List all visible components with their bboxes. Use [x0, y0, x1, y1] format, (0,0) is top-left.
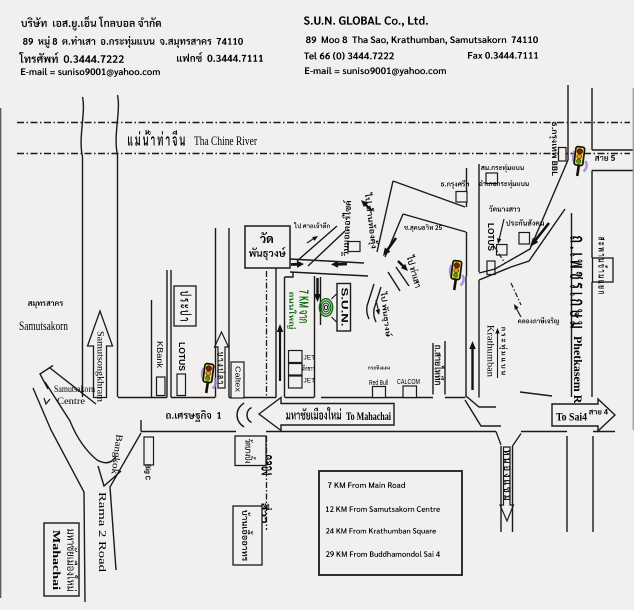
svg-text:To Mahachai: To Mahachai	[346, 409, 391, 423]
svg-text:Red Bull: Red Bull	[369, 378, 388, 387]
svg-text:To Sai4: To Sai4	[556, 410, 587, 424]
svg-text:Mahachai: Mahachai	[50, 530, 62, 590]
svg-text:Tha Chine River: Tha Chine River	[194, 133, 257, 148]
svg-text:LOTUS: LOTUS	[177, 342, 187, 371]
svg-text:CALCOM: CALCOM	[397, 377, 420, 386]
svg-text:S.U.N.: S.U.N.	[340, 288, 350, 327]
svg-text:JET: JET	[304, 378, 316, 385]
svg-text:Samutsongkhram: Samutsongkhram	[95, 331, 105, 403]
svg-text:Krathumban: Krathumban	[485, 325, 495, 377]
svg-text:Caltex: Caltex	[234, 366, 243, 392]
svg-text:Rama 2 Road: Rama 2 Road	[96, 492, 108, 573]
svg-text:Big C: Big C	[144, 464, 151, 480]
svg-text:Centre: Centre	[57, 397, 85, 407]
svg-text:JET: JET	[304, 355, 316, 362]
svg-text:KBank: KBank	[155, 341, 164, 369]
svg-text:Samutsakorn: Samutsakorn	[19, 319, 69, 333]
